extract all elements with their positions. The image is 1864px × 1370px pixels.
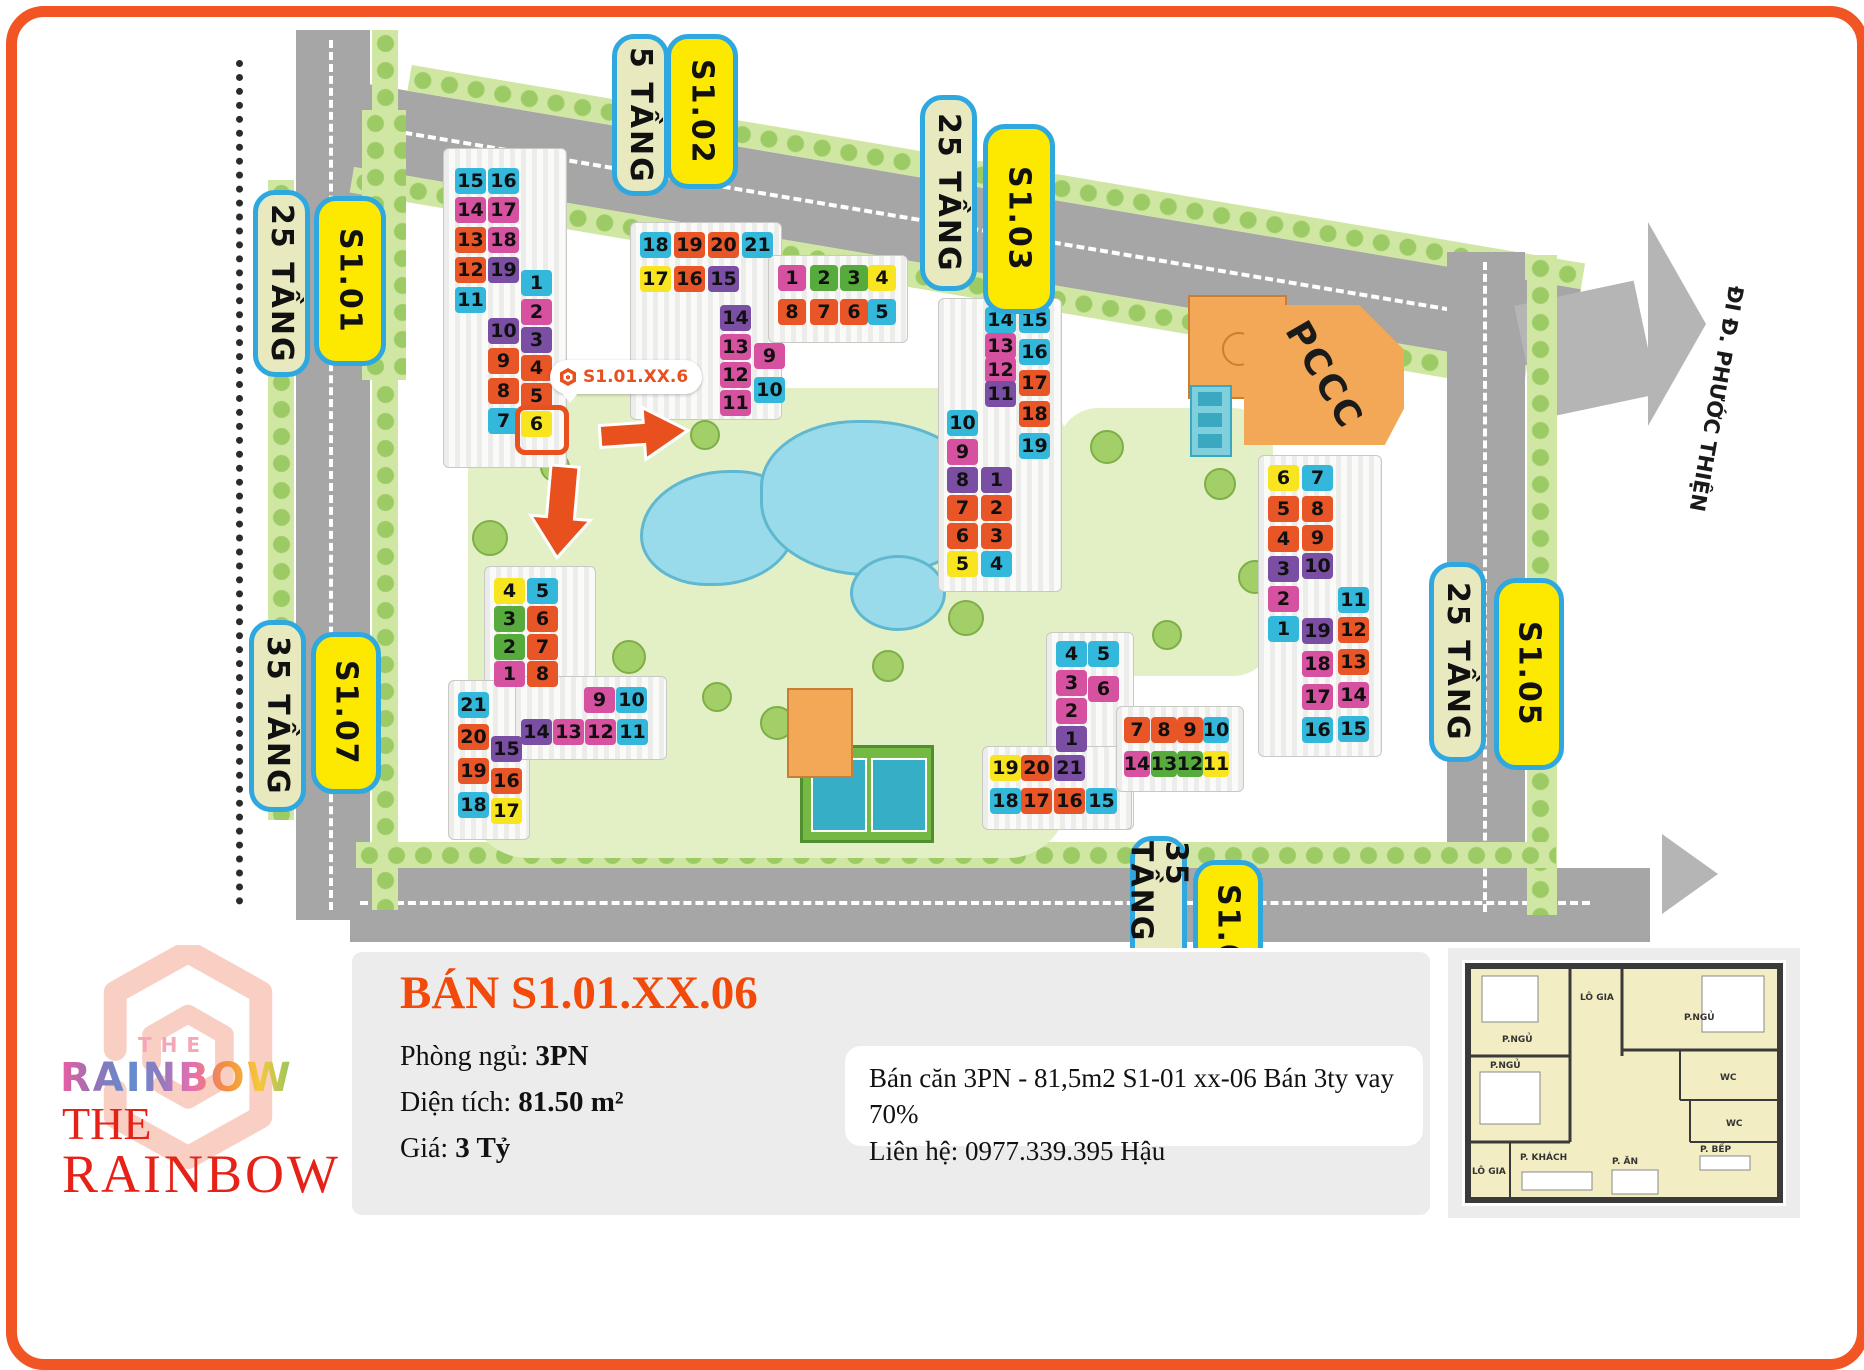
unit-box-S1.0x-1: 1	[1056, 726, 1087, 752]
playground	[787, 688, 853, 778]
map-label-pill: S1.07	[311, 632, 381, 794]
unit-box-S1.03-5: 5	[947, 551, 978, 577]
road-centerline	[360, 901, 1590, 905]
unit-box-S1.05-9: 9	[1302, 525, 1333, 551]
callout-text: S1.01.XX.6	[583, 367, 688, 387]
unit-box-S1.05-15: 15	[1338, 716, 1369, 742]
unit-box-S1.07-15: 15	[491, 736, 522, 762]
unit-box-S1.0x-17: 17	[1021, 788, 1052, 814]
unit-box-S1.01-10: 10	[488, 318, 519, 344]
map-label-pill: S1.01	[314, 196, 386, 366]
unit-box-S1.0x-8: 8	[1151, 717, 1177, 743]
unit-box-S1.05-8: 8	[1302, 496, 1333, 522]
unit-box-S1.07-14: 14	[521, 719, 552, 745]
unit-box-S1.03-9: 9	[947, 439, 978, 465]
unit-box-S1.03-10: 10	[947, 410, 978, 436]
room-label: WC	[1720, 1073, 1737, 1083]
unit-box-S1.0x-10: 10	[1203, 717, 1229, 743]
unit-box-S1.02-2: 2	[810, 265, 838, 291]
unit-box-S1.0x-19: 19	[990, 755, 1021, 781]
unit-box-S1.02-17: 17	[640, 266, 671, 292]
boundary-chain-line	[236, 60, 243, 905]
logo-rainbow-red-label: RAINBOW	[62, 1143, 341, 1205]
utility-blocks	[1190, 385, 1232, 457]
unit-box-S1.03-3: 3	[981, 523, 1012, 549]
floor-plan: P.NGỦ LÔ GIA P.NGỦ P.NGỦ WC WC P. KHÁCH …	[1448, 948, 1800, 1218]
road-arrow-right-icon	[1648, 222, 1706, 426]
unit-box-S1.02-8: 8	[778, 299, 806, 325]
unit-box-S1.05-3: 3	[1268, 556, 1299, 582]
description-line: Liên hệ: 0977.339.395 Hậu	[869, 1133, 1399, 1169]
tree-icon	[1152, 620, 1182, 650]
map-label-pill: 35 TẦNG	[1130, 836, 1187, 948]
pccc-label: PCCC	[1277, 314, 1371, 436]
unit-box-S1.01-9: 9	[488, 348, 519, 374]
logo-the-label: THE	[138, 1033, 209, 1057]
unit-box-S1.03-16: 16	[1019, 339, 1050, 365]
unit-box-S1.0x-18: 18	[990, 788, 1021, 814]
field-label: Giá:	[400, 1133, 448, 1164]
unit-box-S1.02-12: 12	[720, 362, 751, 388]
unit-box-S1.07-5: 5	[527, 578, 558, 604]
unit-box-S1.05-17: 17	[1302, 684, 1333, 710]
unit-box-S1.0x-15: 15	[1086, 788, 1117, 814]
unit-box-S1.05-5: 5	[1268, 496, 1299, 522]
unit-box-S1.0x-14: 14	[1124, 751, 1150, 777]
map-label-pill: 5 TẦNG	[612, 34, 669, 196]
unit-box-S1.03-8: 8	[947, 467, 978, 493]
field-label: Phòng ngủ:	[400, 1041, 528, 1072]
callout-tail	[562, 393, 578, 403]
field-bedrooms: Phòng ngủ: 3PN	[400, 1040, 589, 1073]
unit-box-S1.07-13: 13	[553, 719, 584, 745]
unit-box-S1.05-16: 16	[1302, 717, 1333, 743]
unit-box-S1.03-12: 12	[985, 357, 1016, 383]
unit-box-S1.0x-2: 2	[1056, 698, 1087, 724]
unit-box-S1.07-19: 19	[458, 758, 489, 784]
unit-box-S1.01-11: 11	[455, 287, 486, 313]
unit-box-S1.07-8: 8	[527, 661, 558, 687]
description-line: Bán căn 3PN - 81,5m2 S1-01 xx-06 Bán 3ty…	[869, 1060, 1399, 1133]
unit-box-S1.05-12: 12	[1338, 617, 1369, 643]
unit-box-S1.07-10: 10	[616, 687, 647, 713]
highlight-ring	[515, 405, 569, 455]
unit-box-S1.02-19: 19	[674, 232, 705, 258]
room-label: P. KHÁCH	[1520, 1151, 1567, 1163]
unit-box-S1.07-16: 16	[491, 768, 522, 794]
unit-box-S1.05-7: 7	[1302, 465, 1333, 491]
unit-box-S1.0x-16: 16	[1054, 788, 1085, 814]
unit-box-S1.05-10: 10	[1302, 553, 1333, 579]
unit-box-S1.02-6: 6	[840, 299, 868, 325]
unit-box-S1.01-15: 15	[455, 168, 486, 194]
unit-box-S1.02-13: 13	[720, 334, 751, 360]
unit-box-S1.01-18: 18	[488, 227, 519, 253]
unit-box-S1.02-21: 21	[742, 232, 773, 258]
site-plan-map: PCCC ĐI Đ. PHƯỚC THIỆN 15161417131812191…	[0, 0, 1864, 948]
unit-box-S1.05-11: 11	[1338, 587, 1369, 613]
unit-box-S1.05-19: 19	[1302, 618, 1333, 644]
unit-box-S1.03-6: 6	[947, 523, 978, 549]
tree-icon	[872, 650, 904, 682]
utility-cell	[1198, 392, 1222, 406]
tree-icon	[472, 520, 508, 556]
listing-description: Bán căn 3PN - 81,5m2 S1-01 xx-06 Bán 3ty…	[845, 1046, 1423, 1146]
unit-box-S1.07-17: 17	[491, 798, 522, 824]
field-value: 3PN	[535, 1040, 588, 1072]
unit-box-S1.05-18: 18	[1302, 651, 1333, 677]
map-label-pill: 35 TẦNG	[249, 620, 306, 812]
unit-box-S1.02-7: 7	[810, 299, 838, 325]
flyer: { "frame": {"border_color": "#f05523"}, …	[0, 0, 1864, 1366]
tree-icon	[1090, 430, 1124, 464]
unit-box-S1.03-7: 7	[947, 495, 978, 521]
unit-box-S1.01-17: 17	[488, 197, 519, 223]
unit-box-S1.0x-11: 11	[1203, 751, 1229, 777]
unit-box-S1.02-14: 14	[720, 305, 751, 331]
unit-box-S1.02-10: 10	[754, 377, 785, 403]
unit-box-S1.05-14: 14	[1338, 682, 1369, 708]
unit-box-S1.03-2: 2	[981, 495, 1012, 521]
unit-box-S1.03-1: 1	[981, 467, 1012, 493]
unit-box-S1.02-4: 4	[868, 265, 896, 291]
unit-box-S1.07-2: 2	[494, 634, 525, 660]
map-label-pill: S1.0	[1193, 860, 1263, 948]
unit-box-S1.02-20: 20	[708, 232, 739, 258]
logo-rainbow-gradient-label: RAINBOW	[60, 1055, 293, 1101]
room-label: P. ĂN	[1612, 1155, 1638, 1167]
unit-box-S1.03-13: 13	[985, 333, 1016, 359]
unit-box-S1.01-4: 4	[521, 355, 552, 381]
unit-box-S1.02-16: 16	[674, 266, 705, 292]
unit-box-S1.03-19: 19	[1019, 433, 1050, 459]
tennis-court-surface	[871, 758, 927, 832]
unit-box-S1.02-15: 15	[708, 266, 739, 292]
unit-box-S1.0x-12: 12	[1177, 751, 1203, 777]
utility-cell	[1198, 434, 1222, 448]
field-value: 3 Tỷ	[455, 1132, 510, 1164]
unit-box-S1.02-5: 5	[868, 299, 896, 325]
unit-box-S1.07-3: 3	[494, 606, 525, 632]
unit-box-S1.02-11: 11	[720, 390, 751, 416]
map-label-pill: S1.05	[1494, 578, 1564, 770]
unit-box-S1.01-2: 2	[521, 299, 552, 325]
unit-box-S1.07-12: 12	[585, 719, 616, 745]
room-label: LÔ GIA	[1580, 991, 1614, 1003]
unit-box-S1.0x-20: 20	[1021, 755, 1052, 781]
unit-box-S1.01-13: 13	[455, 227, 486, 253]
unit-box-S1.02-1: 1	[778, 265, 806, 291]
tree-icon	[612, 640, 646, 674]
tree-icon	[690, 420, 720, 450]
unit-box-S1.05-2: 2	[1268, 586, 1299, 612]
unit-box-S1.05-6: 6	[1268, 465, 1299, 491]
unit-box-S1.0x-5: 5	[1088, 641, 1119, 667]
unit-box-S1.07-11: 11	[617, 719, 648, 745]
unit-box-S1.03-17: 17	[1019, 370, 1050, 396]
map-label-pill: 25 TẦNG	[1429, 562, 1486, 762]
unit-box-S1.02-3: 3	[840, 265, 868, 291]
map-label-pill: S1.02	[666, 34, 738, 189]
unit-box-S1.07-18: 18	[458, 792, 489, 818]
unit-box-S1.07-7: 7	[527, 634, 558, 660]
pccc-building: PCCC	[1244, 305, 1404, 445]
unit-box-S1.02-18: 18	[640, 232, 671, 258]
unit-box-S1.03-11: 11	[985, 381, 1016, 407]
unit-box-S1.07-4: 4	[494, 578, 525, 604]
field-value: 81.50 m²	[518, 1086, 623, 1118]
unit-box-S1.07-1: 1	[494, 661, 525, 687]
brand-hex-icon	[558, 367, 578, 387]
road-bottom	[350, 868, 1650, 942]
unit-box-S1.01-16: 16	[488, 168, 519, 194]
unit-box-S1.0x-13: 13	[1151, 751, 1177, 777]
field-label: Diện tích:	[400, 1087, 511, 1118]
unit-box-S1.07-21: 21	[458, 692, 489, 718]
unit-box-S1.01-19: 19	[488, 257, 519, 283]
unit-box-S1.01-12: 12	[455, 257, 486, 283]
field-price: Giá: 3 Tỷ	[400, 1132, 510, 1165]
unit-box-S1.0x-9: 9	[1177, 717, 1203, 743]
unit-box-S1.05-1: 1	[1268, 616, 1299, 642]
unit-box-S1.03-4: 4	[981, 551, 1012, 577]
field-area: Diện tích: 81.50 m²	[400, 1086, 624, 1119]
tree-icon	[702, 682, 732, 712]
unit-callout: S1.01.XX.6	[550, 360, 702, 394]
unit-box-S1.0x-3: 3	[1056, 670, 1087, 696]
unit-box-S1.0x-7: 7	[1124, 717, 1150, 743]
unit-box-S1.0x-4: 4	[1056, 641, 1087, 667]
listing-title: BÁN S1.01.XX.06	[400, 966, 758, 1020]
unit-box-S1.07-20: 20	[458, 724, 489, 750]
tree-icon	[1204, 468, 1236, 500]
room-label: LÔ GIA	[1472, 1165, 1506, 1177]
swimming-pool	[850, 555, 946, 631]
road-arrow-bottom-icon	[1662, 834, 1718, 914]
unit-box-S1.0x-21: 21	[1054, 755, 1085, 781]
unit-box-S1.0x-6: 6	[1088, 676, 1119, 702]
unit-box-S1.01-14: 14	[455, 197, 486, 223]
map-label-pill: 25 TẦNG	[253, 190, 310, 377]
floor-plan-drawing: P.NGỦ LÔ GIA P.NGỦ P.NGỦ WC WC P. KHÁCH …	[1462, 960, 1786, 1206]
tree-icon	[948, 600, 984, 636]
unit-box-S1.03-18: 18	[1019, 401, 1050, 427]
unit-box-S1.01-1: 1	[521, 270, 552, 296]
room-label: WC	[1726, 1119, 1743, 1129]
unit-box-S1.05-4: 4	[1268, 526, 1299, 552]
unit-box-S1.07-9: 9	[584, 687, 615, 713]
unit-box-S1.01-3: 3	[521, 327, 552, 353]
unit-box-S1.05-13: 13	[1338, 649, 1369, 675]
map-label-pill: S1.03	[983, 124, 1055, 314]
map-label-pill: 25 TẦNG	[920, 95, 977, 291]
brand-logo: THE RAINBOW THE RAINBOW	[58, 945, 338, 1220]
unit-box-S1.07-6: 6	[527, 606, 558, 632]
unit-box-S1.02-9: 9	[754, 343, 785, 369]
utility-cell	[1198, 413, 1222, 427]
unit-box-S1.01-8: 8	[488, 378, 519, 404]
